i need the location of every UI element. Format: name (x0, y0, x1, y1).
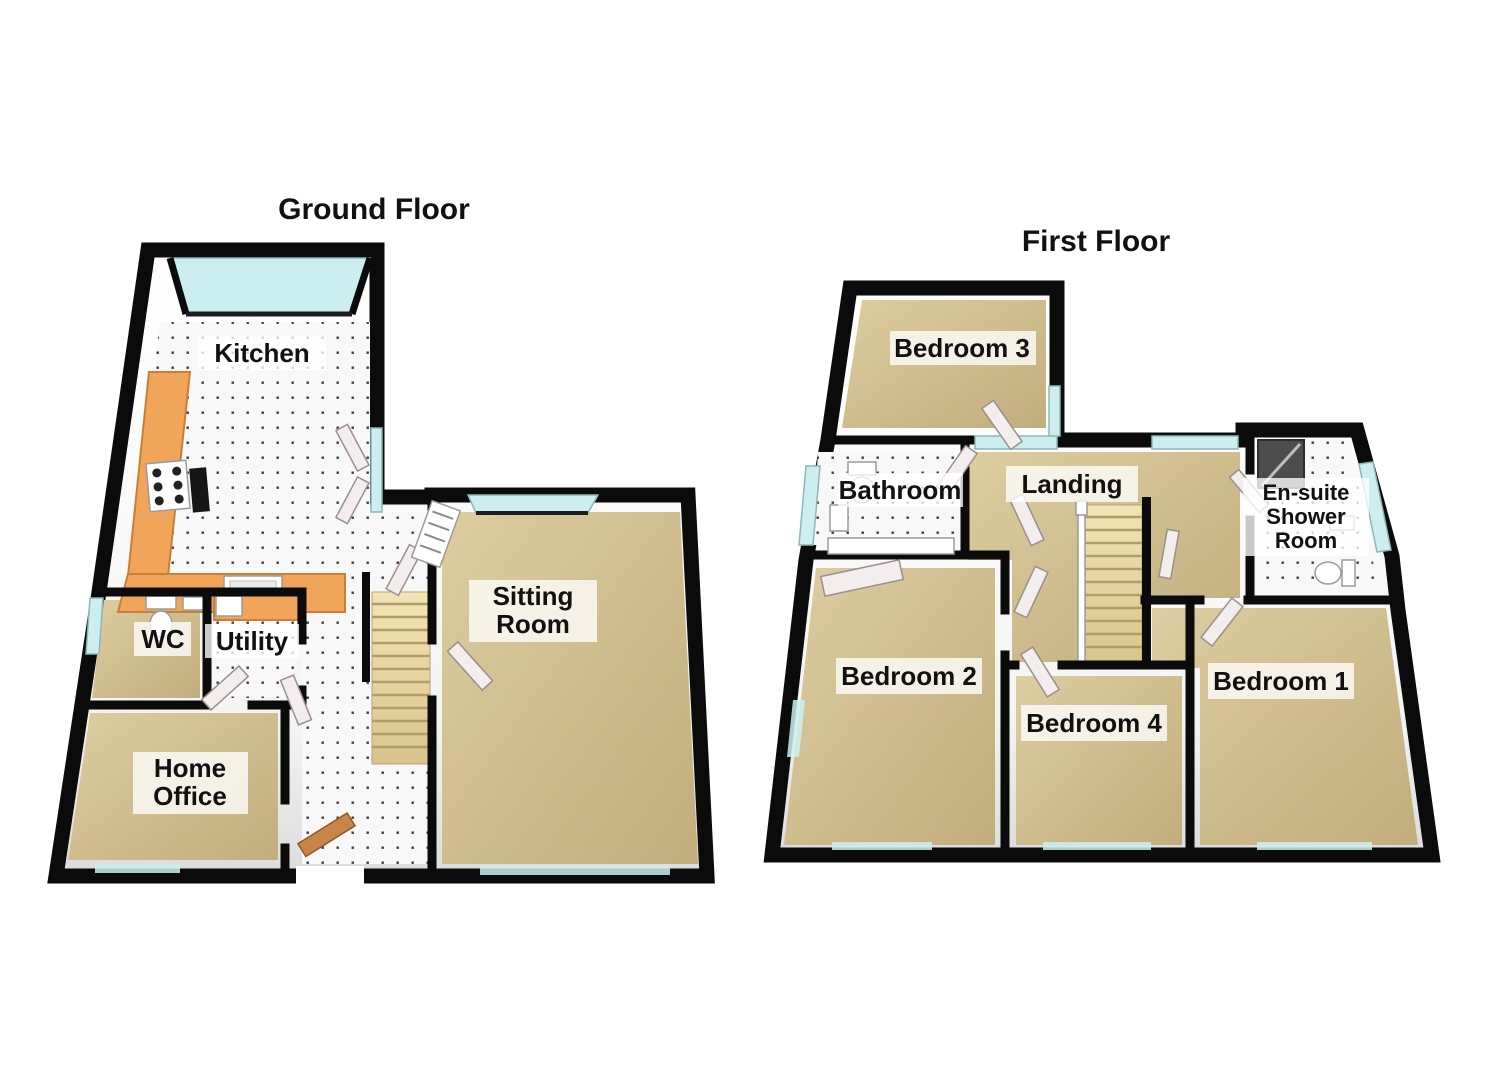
wc-basin-icon (183, 597, 205, 610)
landing-window-right (1152, 436, 1238, 449)
floorplan-canvas: Ground Floor (0, 0, 1485, 1080)
bedroom3-window (1049, 386, 1060, 436)
svg-text:Kitchen: Kitchen (214, 338, 309, 368)
svg-text:Landing: Landing (1021, 469, 1122, 499)
sitting-room-window (468, 495, 598, 513)
first-floor-plan: First Floor (772, 225, 1432, 855)
ground-floor-title: Ground Floor (278, 193, 470, 226)
svg-text:Bedroom 1: Bedroom 1 (1213, 666, 1349, 696)
room-label-home-office: Home Office (133, 752, 248, 814)
room-label-utility: Utility (205, 624, 299, 658)
first-floor-title: First Floor (1022, 225, 1171, 258)
ground-floor-plan: Ground Floor (56, 193, 707, 886)
room-label-bathroom: Bathroom (838, 473, 963, 507)
svg-text:Shower: Shower (1266, 504, 1346, 529)
svg-text:Bedroom 4: Bedroom 4 (1026, 708, 1162, 738)
room-label-sitting-room: Sitting Room (469, 580, 597, 642)
room-label-bedroom1: Bedroom 1 (1208, 663, 1354, 699)
kitchen-bay-window (170, 258, 370, 314)
bedroom2-floor (784, 568, 995, 845)
room-label-landing: Landing (1006, 466, 1138, 502)
svg-text:Bathroom: Bathroom (839, 475, 962, 505)
room-label-bedroom3: Bedroom 3 (890, 331, 1036, 365)
room-label-ensuite: En-suite Shower Room (1243, 478, 1369, 556)
svg-text:Office: Office (153, 781, 227, 811)
floorplan-page: Ground Floor (0, 0, 1485, 1080)
kitchen-side-window (371, 428, 382, 512)
ground-stairs (362, 572, 430, 764)
svg-text:En-suite: En-suite (1263, 480, 1350, 505)
room-label-bedroom2: Bedroom 2 (836, 658, 982, 694)
bathroom-basin-icon (830, 505, 848, 531)
room-label-wc: WC (134, 622, 191, 656)
bedroom4-floor (1016, 676, 1182, 845)
first-floor-stairs (1076, 497, 1151, 665)
home-office-bottom-window (95, 864, 180, 873)
bedroom1-bottom-window (1257, 842, 1372, 850)
bedroom2-bottom-window (832, 842, 932, 850)
svg-text:Utility: Utility (216, 626, 289, 656)
svg-text:Home: Home (154, 753, 226, 783)
bedroom4-bottom-window (1043, 842, 1151, 850)
svg-text:Bedroom 2: Bedroom 2 (841, 661, 977, 691)
sitting-bottom-window (480, 866, 670, 875)
svg-text:Room: Room (496, 609, 570, 639)
bathtub-icon (828, 538, 954, 554)
washer-icon (216, 596, 242, 616)
room-label-bedroom4: Bedroom 4 (1021, 705, 1167, 741)
stove-icon (146, 460, 190, 511)
svg-text:Bedroom 3: Bedroom 3 (894, 333, 1030, 363)
svg-text:Room: Room (1275, 528, 1337, 553)
room-label-kitchen: Kitchen (198, 336, 326, 370)
front-doorway (296, 866, 364, 886)
svg-text:WC: WC (141, 624, 185, 654)
ensuite-toilet-icon (1315, 560, 1355, 586)
svg-text:Sitting: Sitting (493, 581, 574, 611)
